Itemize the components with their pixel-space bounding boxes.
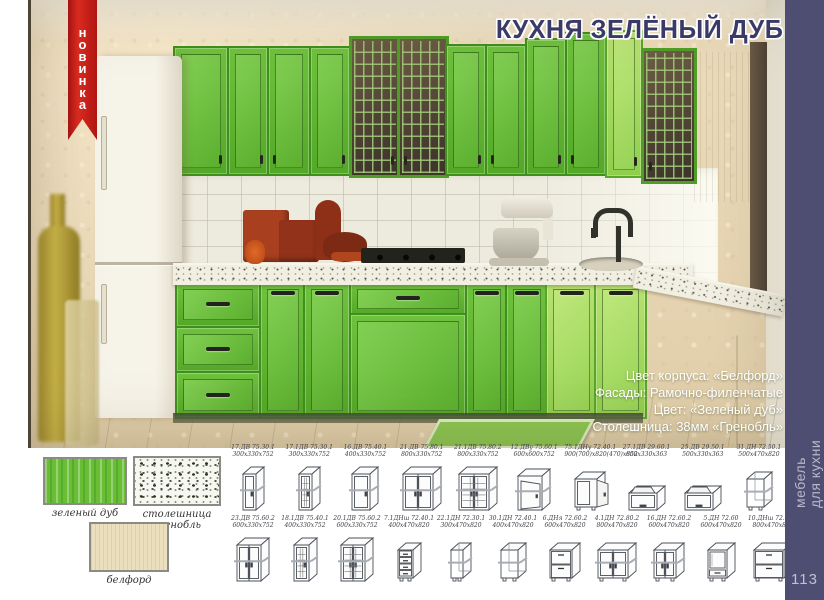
cabinet-item: 5.ДН 72.60600x470x820 (695, 515, 747, 584)
cabinet-dimensions: 400x330x752 (339, 451, 391, 458)
cabinet-code: 18.1ДВ 75.40.1 (279, 515, 331, 522)
fridge-door-split (95, 262, 182, 265)
cabinet-item: 22.1ДН 72.30.1300x470x820 (435, 515, 487, 584)
cabinet-drawing (283, 459, 335, 513)
cabinet-code: 17.1ДВ 75.30.1 (283, 444, 335, 451)
cabinet-drawing (733, 459, 785, 513)
spec-line: Цвет: «Зеленый дуб» (592, 401, 783, 418)
cabinet-code: 30.1ДН 72.40.1 (487, 515, 539, 522)
fridge-handle (101, 284, 107, 344)
cabinet-item: 17.ДВ 75.30.1300x330x752 (227, 444, 279, 513)
cabinet-drawing (621, 459, 673, 513)
cabinet-item: 7.1ДНш 72.40.1400x470x820 (383, 515, 435, 584)
swatch-grenoble: столешница гренобль (131, 456, 223, 531)
wall-cabinet-door (309, 46, 351, 176)
cabinet-code: 4.1ДН 72.80.2 (591, 515, 643, 522)
cabinet-code: 5.ДН 72.60 (695, 515, 747, 522)
cabinet-drawing (339, 459, 391, 513)
cabinet-item: 20.1ДВ 75.60.2600x330x752 (331, 515, 383, 584)
sidebar-section-label: мебельдля кухни (793, 440, 823, 508)
cabinet-item: 21.ДВ 75.80.1800x330x752 (396, 444, 448, 513)
cabinet-dimensions: 400x470x820 (383, 522, 435, 529)
cabinet-item: 30.1ДН 72.40.1400x470x820 (487, 515, 539, 584)
cabinet-code: 16.ДВ 75.40.1 (339, 444, 391, 451)
mixer-bowl (493, 228, 539, 262)
catalog-page: новинка КУХНЯ ЗЕЛЁНЫЙ ДУБ Цвет корпуса: … (0, 0, 824, 600)
wall-cabinet-glass-door (397, 36, 449, 178)
cabinet-code: 22.1ДН 72.30.1 (435, 515, 487, 522)
cabinet-dimensions: 600x600x752 (508, 451, 560, 458)
cabinet-drawing (508, 459, 560, 513)
base-cabinet-door (505, 281, 549, 419)
refrigerator (95, 56, 182, 418)
swatch-green-oak: зеленый дуб (41, 457, 129, 519)
cabinet-item: 17.1ДВ 75.30.1300x330x752 (283, 444, 335, 513)
wall-cabinet-door (485, 44, 527, 176)
cabinet-dimensions: 600x470x820 (539, 522, 591, 529)
wall-cabinet-glass-door (641, 48, 697, 184)
wall-cabinet-door (605, 30, 643, 178)
cabinet-dimensions: 400x470x820 (487, 522, 539, 529)
cabinet-code: 7.1ДНш 72.40.1 (383, 515, 435, 522)
cutting-board (279, 220, 319, 262)
wall-cabinet-glass-door (349, 36, 401, 178)
cabinet-item: 18.1ДВ 75.40.1400x330x752 (279, 515, 331, 584)
sidebar-strip: мебельдля кухни 113 (785, 0, 824, 600)
cabinet-code: 21.ДВ 75.80.1 (396, 444, 448, 451)
page-title: КУХНЯ ЗЕЛЁНЫЙ ДУБ (496, 14, 783, 45)
cabinet-drawing (539, 530, 591, 584)
wall-corner-edge (750, 42, 767, 294)
cabinet-code: 75.1ДНу 72.40.1 (564, 444, 616, 451)
fridge-handle (101, 116, 107, 190)
wall-cabinet-door (565, 32, 607, 176)
page-number: 113 (785, 571, 824, 588)
spec-text-block: Цвет корпуса: «Белфорд» Фасады: Рамочно-… (592, 367, 783, 435)
sidebar-text-line: для кухни (808, 440, 823, 508)
cabinet-item: 31.ДН 72.50.1500x470x820 (733, 444, 785, 513)
mixer-head (501, 196, 553, 218)
faucet-spout (591, 228, 596, 238)
cabinet-drawing (452, 459, 504, 513)
cabinet-code: 27.1ДВ 29.60.1 (621, 444, 673, 451)
base-cabinet-door (545, 281, 598, 419)
cabinet-drawing (435, 530, 487, 584)
cabinet-drawing (383, 530, 435, 584)
cabinet-dimensions: 800x330x752 (452, 451, 504, 458)
cabinet-code: 25.ДВ 29.50.1 (677, 444, 729, 451)
cabinet-code: 20.1ДВ 75.60.2 (331, 515, 383, 522)
cabinet-dimensions: 500x330x363 (677, 451, 729, 458)
cabinet-drawing (643, 530, 695, 584)
cabinet-code: 17.ДВ 75.30.1 (227, 444, 279, 451)
gas-hob (361, 248, 465, 263)
cabinet-code: 16.ДН 72.60.2 (643, 515, 695, 522)
clay-jug (245, 240, 265, 264)
cabinet-code: 31.ДН 72.50.1 (733, 444, 785, 451)
cabinet-row-2: 23.ДВ 75.60.2600x330x75218.1ДВ 75.40.140… (227, 515, 785, 584)
wall-cabinet-door (267, 46, 311, 176)
swatch-label: зеленый дуб (41, 508, 129, 519)
wall-cabinet-door (445, 44, 487, 176)
base-cabinet-drawer (349, 281, 467, 317)
cabinet-code: 21.1ДВ 75.80.2 (452, 444, 504, 451)
cabinet-dimensions: 600x470x820 (695, 522, 747, 529)
cabinet-drawing (227, 459, 279, 513)
cabinet-dimensions: 600x470x820 (643, 522, 695, 529)
cabinet-item: 23.ДВ 75.60.2600x330x752 (227, 515, 279, 584)
cabinet-drawing (564, 459, 616, 513)
spec-line: Цвет корпуса: «Белфорд» (592, 367, 783, 384)
cabinet-item: 75.1ДНу 72.40.1900(700)x820(470)x852 (564, 444, 616, 513)
belford-sample (89, 522, 169, 572)
base-cabinet-panel (349, 313, 467, 419)
base-drawer-stack (175, 281, 257, 415)
cabinet-drawing (279, 530, 331, 584)
cabinet-dimensions: 900(700)x820(470)x852 (564, 451, 616, 458)
cabinet-dimensions: 800x330x752 (396, 451, 448, 458)
ribbon-letter: а (79, 99, 86, 111)
cabinet-code: 23.ДВ 75.60.2 (227, 515, 279, 522)
cabinet-item: 12.ДВу 75.60.1600x600x752 (508, 444, 560, 513)
spec-line: Столешница: 38мм «Гренобль» (592, 418, 783, 435)
cabinet-item: 16.ДН 72.60.2600x470x820 (643, 515, 695, 584)
cabinet-item: 21.1ДВ 75.80.2800x330x752 (452, 444, 504, 513)
cabinet-dimensions: 300x330x752 (283, 451, 335, 458)
beige-cabinet-panel (689, 52, 750, 202)
cabinet-item: 27.1ДВ 29.60.1600x330x363 (621, 444, 673, 513)
grenoble-sample (133, 456, 221, 506)
cabinet-drawing (591, 530, 643, 584)
cabinet-row-1: 17.ДВ 75.30.1300x330x75217.1ДВ 75.30.130… (227, 444, 785, 513)
cabinet-drawing (396, 459, 448, 513)
cabinet-dimensions: 600x330x752 (331, 522, 383, 529)
cabinet-dimensions: 300x470x820 (435, 522, 487, 529)
wall-cabinet-door (525, 38, 567, 176)
faucet-arc (593, 208, 633, 237)
cabinet-dimensions: 800x470x820 (591, 522, 643, 529)
mixer-base (489, 258, 549, 266)
cabinet-dimensions: 500x470x820 (733, 451, 785, 458)
cabinet-drawing (331, 530, 383, 584)
cabinet-item: 4.1ДН 72.80.2800x470x820 (591, 515, 643, 584)
cabinet-drawing (695, 530, 747, 584)
cabinet-dimensions: 300x330x752 (227, 451, 279, 458)
cabinet-item: 16.ДВ 75.40.1400x330x752 (339, 444, 391, 513)
swatch-label: белфорд (85, 575, 173, 586)
cabinet-drawing (677, 459, 729, 513)
cabinet-drawing (487, 530, 539, 584)
base-cabinet-door (303, 281, 351, 419)
cabinet-code: 6.ДНя 72.60.2 (539, 515, 591, 522)
wall-cabinet-door (227, 46, 269, 176)
sink (579, 257, 643, 271)
cabinet-dimensions: 400x330x752 (279, 522, 331, 529)
cabinet-dimensions: 600x330x752 (227, 522, 279, 529)
cabinet-item: 25.ДВ 29.50.1500x330x363 (677, 444, 729, 513)
base-cabinet-door (465, 281, 509, 419)
swatch-belford: белфорд (85, 522, 173, 586)
drinking-glass (65, 300, 99, 445)
spec-line: Фасады: Рамочно-филенчатые (592, 384, 783, 401)
cabinet-item: 6.ДНя 72.60.2600x470x820 (539, 515, 591, 584)
sidebar-text-line: мебель (793, 440, 808, 508)
new-badge-ribbon: новинка (68, 0, 97, 140)
green-oak-sample (43, 457, 127, 505)
cabinet-dimensions: 600x330x363 (621, 451, 673, 458)
cabinet-code: 12.ДВу 75.60.1 (508, 444, 560, 451)
cabinet-drawing (227, 530, 279, 584)
base-cabinet-door (259, 281, 307, 419)
